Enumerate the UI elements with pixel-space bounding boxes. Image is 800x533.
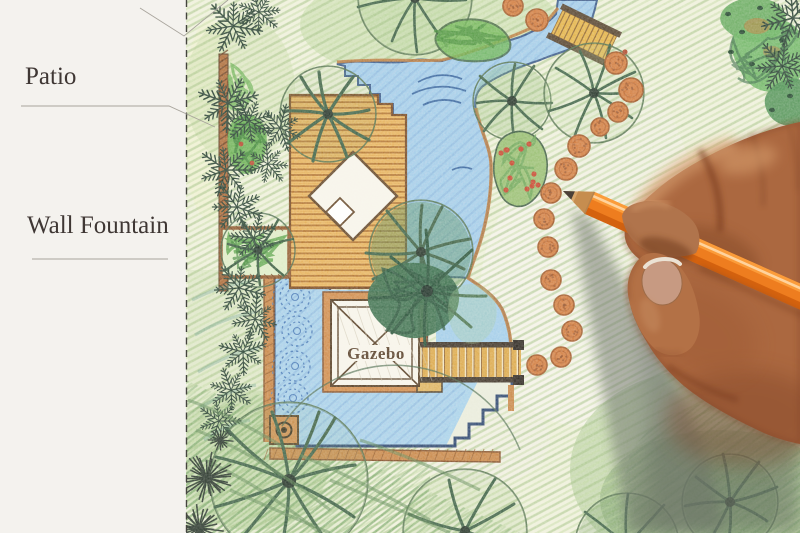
svg-text:Wall Fountain: Wall Fountain [27, 212, 169, 239]
svg-text:Patio: Patio [25, 63, 76, 90]
